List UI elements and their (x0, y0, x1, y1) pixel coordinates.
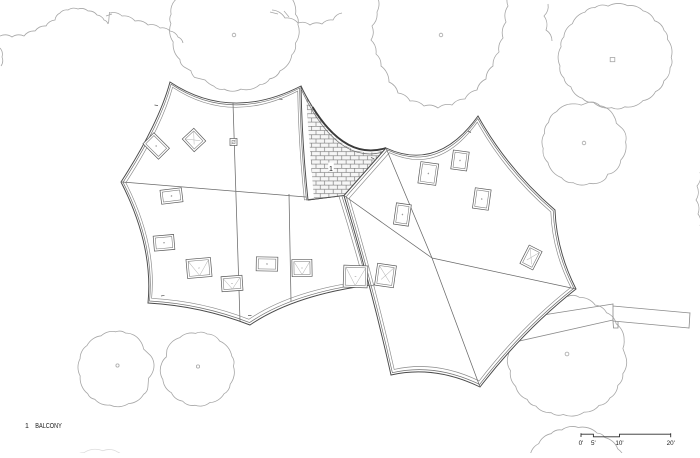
svg-text:1: 1 (329, 166, 333, 173)
svg-text:BALCONY: BALCONY (35, 423, 62, 430)
svg-text:5': 5' (591, 440, 596, 447)
svg-text:10': 10' (615, 440, 623, 447)
svg-text:20': 20' (667, 440, 675, 447)
svg-text:0': 0' (579, 440, 584, 447)
svg-text:1: 1 (25, 423, 29, 430)
